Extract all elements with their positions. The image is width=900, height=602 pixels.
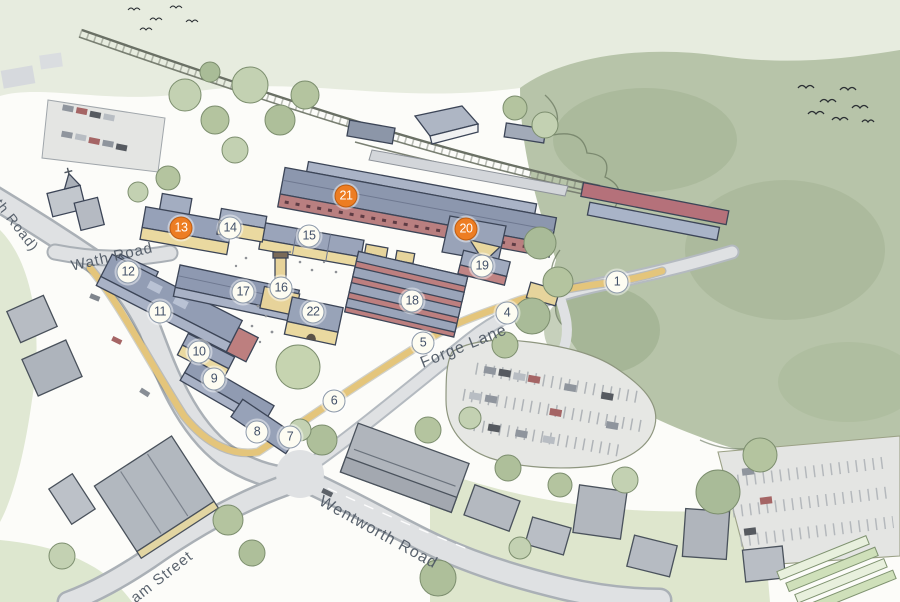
masterplan-canvas: [0, 0, 900, 602]
masterplan-illustration: Wath Roadth Road)Forge LaneWentworth Roa…: [0, 0, 900, 602]
